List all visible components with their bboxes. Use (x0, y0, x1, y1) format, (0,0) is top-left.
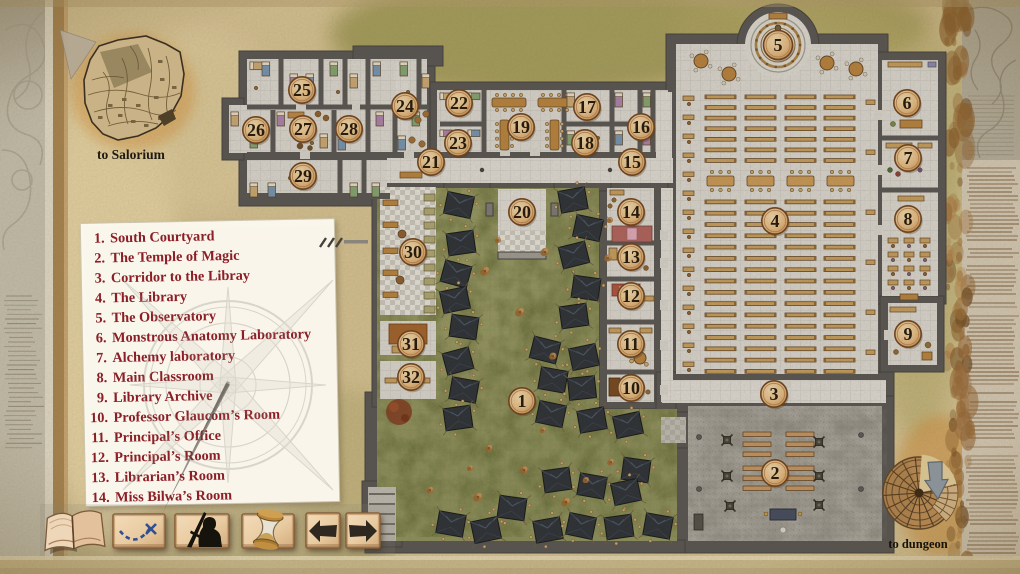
svg-text:5.: 5. (95, 310, 106, 326)
svg-text:South Courtyard: South Courtyard (110, 228, 215, 246)
svg-text:The Temple of Magic: The Temple of Magic (110, 248, 239, 266)
svg-text:to Salorium: to Salorium (97, 147, 166, 162)
svg-text:2.: 2. (94, 250, 105, 266)
svg-text:8.: 8. (96, 370, 107, 386)
svg-text:10.: 10. (90, 410, 108, 426)
svg-text:14.: 14. (92, 490, 110, 506)
svg-text:13.: 13. (91, 470, 109, 486)
svg-text:Miss Bilwa’s Room: Miss Bilwa’s Room (115, 487, 232, 505)
svg-text:3.: 3. (94, 270, 105, 286)
svg-text:6.: 6. (96, 330, 107, 346)
svg-text:to dungeon: to dungeon (888, 537, 947, 551)
svg-text:4.: 4. (95, 290, 106, 306)
svg-text:9.: 9. (97, 390, 108, 406)
svg-text:11.: 11. (91, 430, 108, 446)
svg-text:1.: 1. (94, 231, 105, 247)
svg-text:12.: 12. (91, 450, 109, 466)
svg-text:7.: 7. (96, 350, 107, 366)
svg-text:Corridor to the Libray: Corridor to the Libray (111, 268, 251, 287)
